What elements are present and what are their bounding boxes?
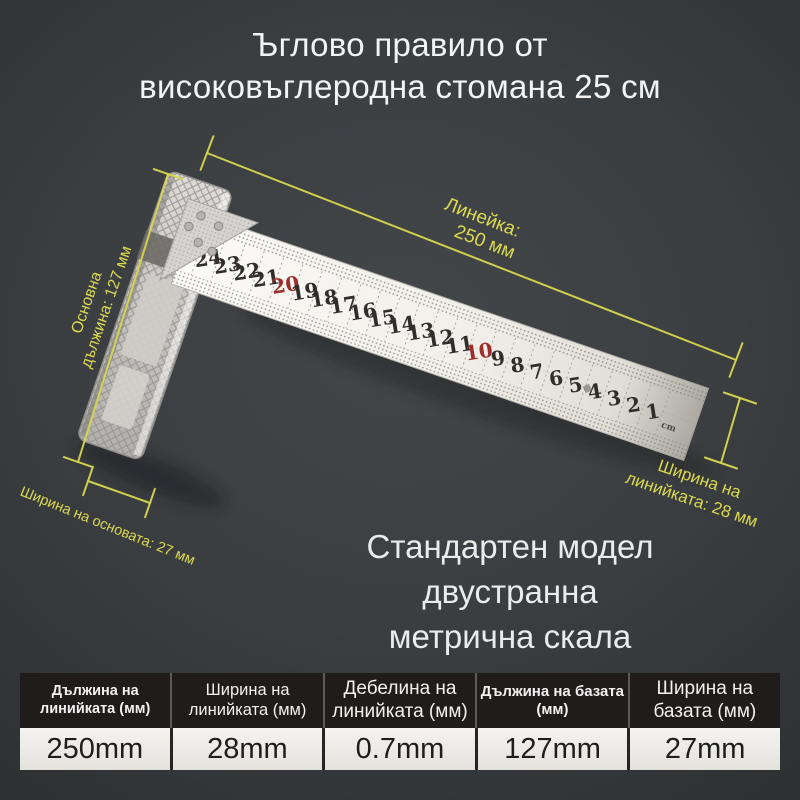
subtitle-line2: двустранна: [310, 569, 710, 614]
spec-header-ruler-width: Ширина налинийката (мм): [170, 673, 322, 728]
spec-header-base-width: Ширина набазата (мм): [628, 673, 780, 728]
spec-table-value-row: 250mm 28mm 0.7mm 127mm 27mm: [20, 728, 780, 770]
spec-header-ruler-length: Дължина на линийката (мм): [20, 673, 170, 728]
spec-value-ruler-width: 28mm: [170, 728, 323, 770]
spec-header-ruler-thickness: Дебелина налинийката (мм): [323, 673, 475, 728]
ruler-blade: 242322212019181716151413121110987654321c…: [171, 212, 708, 460]
subtitle-line1: Стандартен модел: [310, 524, 710, 569]
spec-table-header-row: Дължина на линийката (мм) Ширина налиний…: [20, 673, 780, 728]
spec-header-base-length: Дължина на базата (мм): [475, 673, 627, 728]
product-image: Ъглово правило от високовъглеродна стома…: [0, 0, 800, 800]
spec-value-ruler-thickness: 0.7mm: [322, 728, 475, 770]
spec-value-ruler-length: 250mm: [20, 728, 170, 770]
annotation-ruler-length: Линейка: 250 мм: [434, 194, 528, 264]
dimension-line-ruler-width: [705, 393, 756, 469]
subtitle-line3: метрична скала: [310, 614, 710, 659]
spec-table: Дължина на линийката (мм) Ширина налиний…: [20, 673, 780, 770]
subtitle: Стандартен модел двустранна метрична ска…: [310, 524, 710, 659]
spec-value-base-width: 27mm: [627, 728, 780, 770]
spec-value-base-length: 127mm: [475, 728, 628, 770]
